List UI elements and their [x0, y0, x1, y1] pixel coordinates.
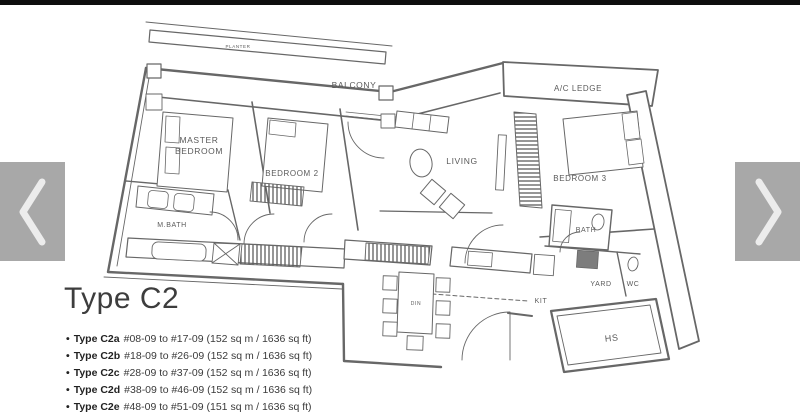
unit-type: Type C2c — [74, 367, 120, 379]
label-mbath: M.BATH — [157, 222, 187, 229]
label-balcony: BALCONY — [332, 80, 377, 90]
list-item: •Type C2d#38-09 to #46-09 (152 sq m / 16… — [66, 382, 396, 399]
bullet-glyph: • — [66, 401, 70, 413]
unit-list: •Type C2a#08-09 to #17-09 (152 sq m / 16… — [66, 331, 396, 416]
list-item: •Type C2e#48-09 to #51-09 (151 sq m / 16… — [66, 399, 396, 416]
unit-type: Type C2d — [74, 384, 120, 396]
chevron-left-icon — [11, 175, 55, 249]
list-item: •Type C2b#18-09 to #26-09 (152 sq m / 16… — [66, 348, 396, 365]
label-master-bedroom-line2: BEDROOM — [175, 146, 223, 156]
list-item: •Type C2c#28-09 to #37-09 (152 sq m / 16… — [66, 365, 396, 382]
list-item: •Type C2a#08-09 to #17-09 (152 sq m / 16… — [66, 331, 396, 348]
chevron-right-icon — [746, 175, 790, 249]
label-planter: PLANTER — [226, 44, 251, 49]
bullet-glyph: • — [66, 333, 70, 345]
label-bedroom3: BEDROOM 3 — [553, 174, 606, 183]
unit-details: #38-09 to #46-09 (152 sq m / 1636 sq ft) — [124, 384, 312, 396]
label-bath: BATH — [576, 227, 597, 234]
label-kit: KIT — [535, 298, 548, 305]
label-ac-ledge: A/C LEDGE — [554, 84, 602, 93]
unit-details: #08-09 to #17-09 (152 sq m / 1636 sq ft) — [124, 333, 312, 345]
unit-details: #48-09 to #51-09 (151 sq m / 1636 sq ft) — [124, 401, 312, 413]
label-wc: WC — [627, 281, 640, 288]
unit-type: Type C2a — [74, 333, 120, 345]
unit-details: #18-09 to #26-09 (152 sq m / 1636 sq ft) — [124, 350, 312, 362]
bullet-glyph: • — [66, 350, 70, 362]
unit-details: #28-09 to #37-09 (152 sq m / 1636 sq ft) — [124, 367, 312, 379]
label-bedroom2: BEDROOM 2 — [265, 169, 318, 178]
carousel-prev-button[interactable] — [0, 162, 65, 261]
label-master-bedroom-line1: MASTER — [179, 135, 218, 145]
label-hs: HS — [604, 332, 619, 343]
label-living: LIVING — [446, 156, 477, 166]
bullet-glyph: • — [66, 367, 70, 379]
carousel-viewport: PLANTER BALCONY A/C LEDGE MASTER BEDROOM… — [0, 0, 800, 412]
page-title: Type C2 — [64, 282, 179, 316]
bullet-glyph: • — [66, 384, 70, 396]
unit-type: Type C2e — [74, 401, 120, 413]
label-yard: YARD — [590, 281, 611, 288]
label-din: DIN — [411, 301, 421, 307]
carousel-next-button[interactable] — [735, 162, 800, 261]
unit-type: Type C2b — [74, 350, 120, 362]
